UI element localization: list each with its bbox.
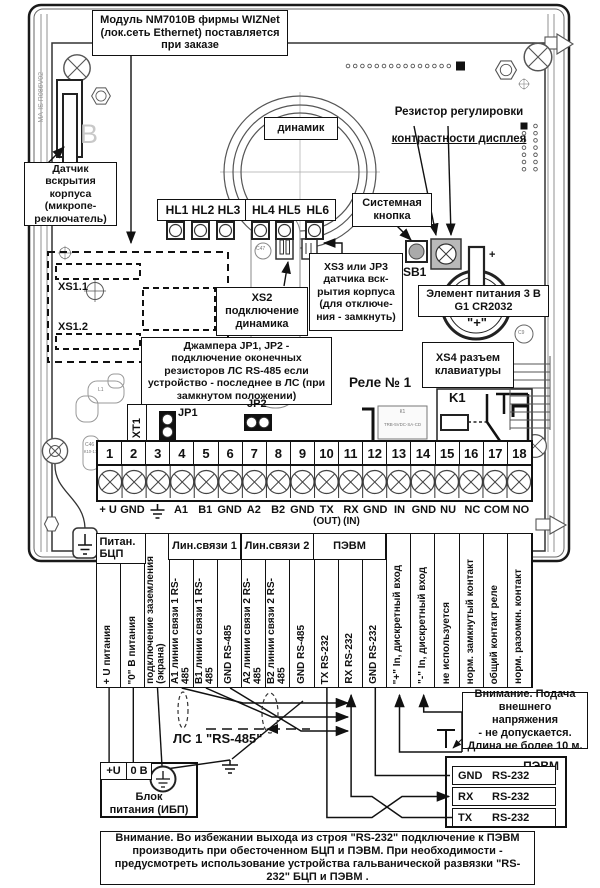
terminal-number: 18 [508, 442, 531, 464]
terminal-number: 14 [411, 442, 435, 464]
xs4-note: XS4 разъем клавиатуры [422, 342, 514, 388]
terminal-signal: A1 [169, 503, 193, 517]
terminal-number: 3 [146, 442, 170, 464]
table-column: "-" In, дискретный вход [411, 534, 435, 687]
contrast-note-line2: контрастности дисплея [392, 133, 527, 145]
device-wiring-diagram: Модуль NM7010В фирмы WIZNet (лок.сеть Et… [0, 0, 600, 888]
terminal-number: 10 [315, 442, 339, 464]
table-header-pc: ПЭВМ [313, 533, 386, 560]
xs2-note: XS2 подключение динамика [216, 287, 308, 336]
sb1-label: SB1 [403, 265, 433, 279]
terminal-number: 9 [291, 442, 315, 464]
table-column: "+" In, дискретный вход [387, 534, 411, 687]
terminal-screws [98, 466, 531, 498]
terminal-number: 2 [122, 442, 146, 464]
system-button-note: Системная кнопка [352, 193, 432, 227]
terminal-number: 11 [339, 442, 363, 464]
terminal-signal: NC [460, 503, 484, 517]
xs11-label: XS1.1 [58, 281, 102, 294]
table-column: норм. разомкн. контакт [508, 534, 532, 687]
pc-box: ПЭВМ GNDRS-232 RXRS-232 TXRS-232 [445, 756, 567, 828]
xs3-note: XS3 или JP3 датчика вск- рытия корпуса (… [309, 253, 403, 331]
pc-rx-row: RXRS-232 [452, 787, 556, 806]
c9-ref: C9 [518, 331, 524, 337]
hl456-label: HL4 HL5 HL6 [245, 199, 336, 221]
table-column: норм. замкнутый контакт [460, 534, 484, 687]
terminal-number: 13 [387, 442, 411, 464]
terminal-signal: IN [387, 503, 411, 517]
terminal-number: 4 [170, 442, 194, 464]
c47-ref: C47 [256, 247, 265, 253]
speaker-label: динамик [264, 117, 338, 140]
terminal-number-row: 1 2 3 4 5 6 7 8 9 10 11 12 13 14 15 16 1… [96, 440, 533, 466]
terminal-number: 15 [436, 442, 460, 464]
pc-gnd-row: GNDRS-232 [452, 766, 556, 785]
jumper-note: Джампера JP1, JP2 - подключение оконечны… [141, 337, 332, 405]
battery-note: Элемент питания 3 В G1 CR2032 [418, 285, 549, 317]
terminal-signal: NU [436, 503, 460, 517]
letter-b: B [80, 118, 98, 150]
ls1-label: ЛС 1 "RS-485" [173, 731, 283, 747]
xs12-label: XS1.2 [58, 321, 102, 334]
terminal-signal: B1 [193, 503, 217, 517]
rs232-warning-note: Внимание. Во избежании выхода из строя "… [100, 831, 535, 885]
relay-title: Реле № 1 [349, 375, 429, 391]
terminal-signal: A2 [242, 503, 266, 517]
contrast-resistor-note: Резистор регулировки контрастности диспл… [384, 92, 534, 147]
tx-direction: (OUT) [312, 516, 342, 528]
terminal-signal: GND [290, 503, 314, 517]
table-column: общий контакт реле [484, 534, 508, 687]
psu-label: Блок питания (ИБП) [102, 791, 196, 817]
terminal-signal: GND [412, 503, 436, 517]
terminal-number: 8 [267, 442, 291, 464]
hl123-label: HL1 HL2 HL3 [157, 199, 249, 221]
board-code: MA-IS R086V02 [37, 72, 50, 187]
c46-ref: C46 [85, 443, 94, 449]
jp1-label: JP1 [178, 407, 208, 420]
terminal-signal: GND [217, 503, 241, 517]
relay-part-number: TRB-5VDC-SA-CD [378, 423, 427, 428]
table-column: подключение заземления (экрана) [145, 534, 169, 687]
battery-clip-plus: + [489, 249, 501, 262]
table-header-line2: Лин.связи 2 [241, 533, 314, 560]
l1-ref: L1 [98, 388, 104, 394]
power-supply-box: +U 0 В Блок питания (ИБП) [100, 762, 198, 818]
hl45-label: HL4 HL5 [252, 203, 301, 217]
table-header-power: Питан. БЦП [96, 533, 146, 564]
k1-label: K1 [449, 390, 479, 406]
contrast-note-line1: Резистор регулировки [395, 106, 523, 118]
terminal-number: 16 [460, 442, 484, 464]
table-column: не используется [435, 534, 459, 687]
battery-plus-label: "+" [458, 315, 496, 331]
table-header-line1: Лин.связи 1 [168, 533, 241, 560]
psu-plus-terminal: +U [100, 762, 127, 780]
terminal-signal-row: + U GND A1 B1 GND A2 B2 GND TX RX GND IN… [96, 503, 533, 517]
rx-direction: (IN) [339, 516, 364, 528]
terminal-signal: RX [339, 503, 363, 517]
earth-symbol [145, 503, 169, 517]
hl6-label: HL6 [306, 203, 329, 217]
terminal-number: 1 [98, 442, 122, 464]
voltage-warning-note: Внимание. Подача внешнего напряжения - н… [462, 692, 588, 749]
terminal-number: 12 [363, 442, 387, 464]
terminal-screw-row [96, 466, 533, 502]
module-note: Модуль NM7010В фирмы WIZNet (лок.сеть Et… [92, 10, 288, 56]
terminal-number: 5 [194, 442, 218, 464]
terminal-signal: + U [96, 503, 120, 517]
terminal-signal: B2 [266, 503, 290, 517]
terminal-number: 7 [243, 442, 267, 464]
signal-description-table: + U питания "0" В питания подключение за… [96, 533, 533, 688]
terminal-signal: TX [315, 503, 339, 517]
terminal-signal: GND [120, 503, 144, 517]
terminal-number: 6 [219, 442, 243, 464]
pc-tx-row: TXRS-232 [452, 808, 556, 827]
terminal-signal: NO [509, 503, 533, 517]
jp2-label: JP2 [247, 398, 277, 411]
terminal-number: 17 [484, 442, 508, 464]
psu-zero-terminal: 0 В [126, 762, 152, 780]
relay-ref: К1 [378, 410, 427, 416]
terminal-signal: GND [363, 503, 387, 517]
terminal-signal: COM [485, 503, 509, 517]
